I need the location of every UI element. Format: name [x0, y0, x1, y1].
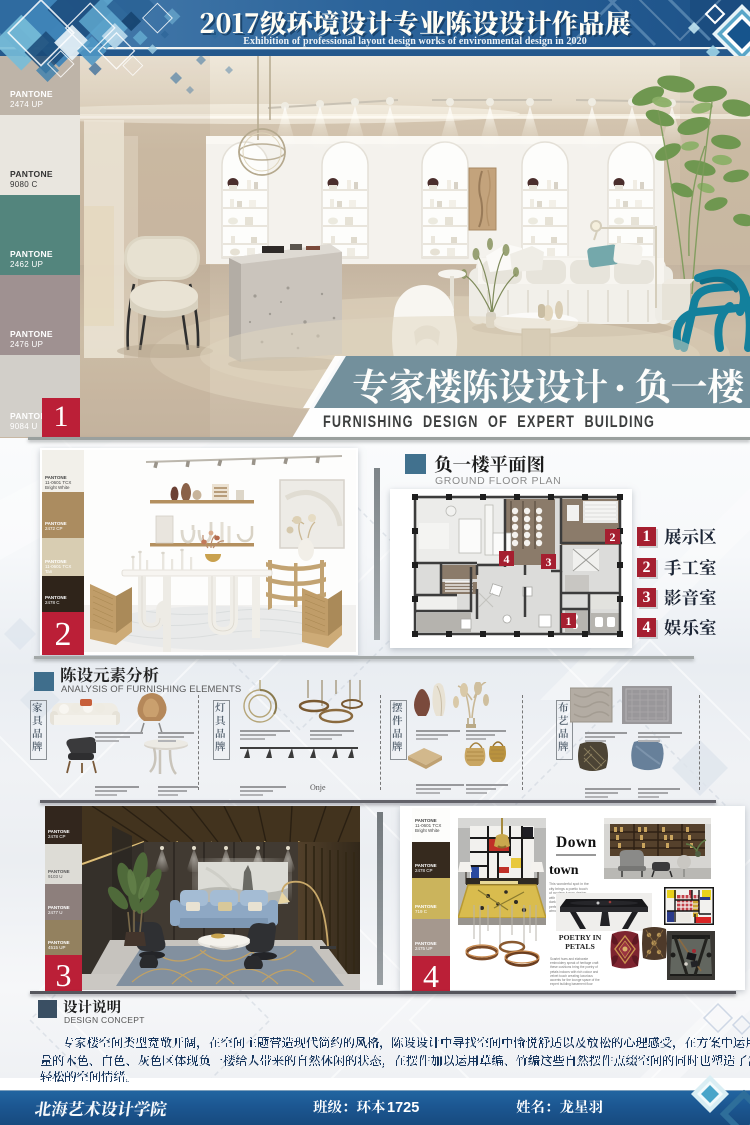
svg-text:4: 4 [504, 552, 510, 566]
svg-text:1725: 1725 [387, 1100, 419, 1116]
svg-text:1: 1 [566, 614, 572, 628]
svg-text:3: 3 [546, 555, 552, 569]
svg-text:2: 2 [610, 530, 616, 544]
